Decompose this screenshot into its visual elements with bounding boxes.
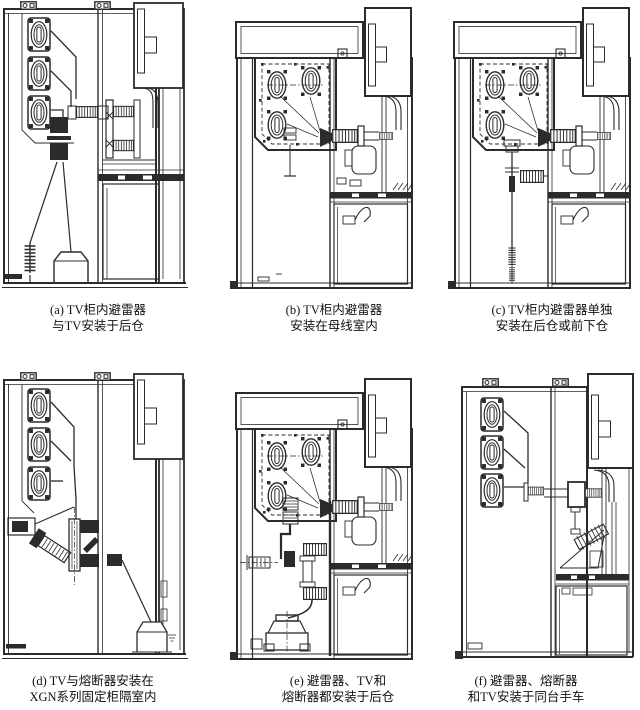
figure-a-caption: (a) TV柜内避雷器 与TV安装于后仓 (0, 302, 204, 334)
busbar-conductors (504, 411, 528, 487)
caption-line: XGN系列固定柜隔室内 (0, 689, 199, 705)
lower-compartment (556, 586, 627, 655)
post-insulators (481, 398, 503, 507)
roof-tab (21, 2, 36, 9)
compartment-divider (330, 192, 411, 202)
figure-page: { "page": { "background": "#ffffff", "li… (0, 0, 640, 710)
oval-insulator (301, 66, 320, 95)
figure-b-caption: (b) TV柜内避雷器 安装在母线室内 (234, 302, 434, 334)
figure-d: (d) TV与熔断器安装在 XGN系列固定柜隔室内 (0, 371, 212, 705)
cable-hook (355, 207, 370, 222)
caption-line: (a) TV柜内避雷器 (0, 302, 204, 318)
wall-bushing (114, 140, 134, 150)
voltage-transformer (54, 252, 88, 282)
caption-line: 安装在母线室内 (234, 318, 434, 334)
cable-hook (355, 578, 370, 593)
post-insulators (28, 389, 50, 500)
roof-tab (95, 2, 110, 9)
lower-bushing (521, 171, 544, 183)
hatch-strip (393, 183, 412, 190)
caption-line: (c) TV柜内避雷器单独 (452, 302, 640, 318)
figure-f-caption: (f) 避雷器、熔断器 和TV安装于同台手车 (427, 673, 625, 705)
cable-hook (573, 207, 588, 222)
figure-d-caption: (d) TV与熔断器安装在 XGN系列固定柜隔室内 (0, 673, 199, 705)
cabinet-d (2, 373, 188, 659)
figure-b: (b) TV柜内避雷器 安装在母线室内 (222, 0, 422, 334)
handcart-shaft (524, 482, 602, 507)
figure-a-drawing (0, 0, 212, 296)
cabinet-c (448, 8, 630, 289)
busbar-conductors (51, 31, 76, 118)
figure-e-drawing (222, 371, 422, 667)
drive-motor (352, 146, 376, 174)
fuse-holder (69, 507, 99, 585)
arrester-lead (30, 162, 57, 243)
oval-insulator (301, 437, 320, 466)
voltage-transformer (251, 611, 310, 654)
hatch-strip (611, 183, 630, 190)
roof-tab (95, 373, 110, 380)
cabinet-e (230, 379, 412, 660)
caption-line: 和TV安装于同台手车 (427, 689, 625, 705)
caption-line: (d) TV与熔断器安装在 (0, 673, 199, 689)
drive-motor (570, 146, 594, 174)
compartment-divider (98, 174, 184, 181)
roof-tab (483, 379, 498, 386)
caption-line: 安装在后仓或前下仓 (452, 318, 640, 334)
busbar-conductors (51, 402, 76, 519)
oval-insulator (267, 481, 286, 510)
surge-arrester (508, 246, 515, 282)
ground-symbol (168, 635, 176, 641)
caption-line: (e) 避雷器、TV和 (238, 673, 438, 689)
compartment-divider (548, 192, 629, 202)
oval-insulator (485, 110, 504, 139)
lower-compartment (103, 184, 159, 279)
figure-e: (e) 避雷器、TV和 熔断器都安装于后仓 (222, 371, 422, 705)
caption-line: 与TV安装于后仓 (0, 318, 204, 334)
wall-bushing (114, 106, 134, 116)
compartment-divider (556, 574, 629, 584)
mechanism-box (134, 374, 183, 459)
caption-line: 熔断器都安装于后仓 (238, 689, 438, 705)
oval-insulator (519, 66, 538, 95)
wall-bushing-right (107, 554, 122, 566)
breaker-poles (47, 117, 71, 160)
mechanism-box (365, 379, 411, 467)
voltage-transformer (132, 622, 176, 652)
cabinet-f (455, 374, 633, 659)
post-insulators (28, 18, 50, 129)
caption-line: (f) 避雷器、熔断器 (427, 673, 625, 689)
figure-f-drawing (440, 371, 638, 667)
cabinet-a (2, 2, 188, 288)
figure-d-drawing (0, 371, 212, 667)
tv-lead (122, 560, 151, 622)
drive-shaft (68, 100, 140, 158)
hatch-strip (393, 554, 412, 561)
compartment-divider (330, 563, 411, 573)
figure-c-caption: (c) TV柜内避雷器单独 安装在后仓或前下仓 (452, 302, 640, 334)
tv-lead (63, 162, 71, 252)
figure-a: (a) TV柜内避雷器 与TV安装于后仓 (0, 0, 212, 334)
mechanism-box (134, 3, 183, 88)
surge-arrester (25, 243, 36, 273)
figure-f: (f) 避雷器、熔断器 和TV安装于同台手车 (440, 371, 638, 705)
figure-b-drawing (222, 0, 422, 296)
busbar-compartment (255, 58, 336, 176)
caption-line: (b) TV柜内避雷器 (234, 302, 434, 318)
mechanism-box (365, 8, 411, 96)
figure-e-caption: (e) 避雷器、TV和 熔断器都安装于后仓 (238, 673, 438, 705)
roof-tab (21, 373, 36, 380)
drive-motor (352, 517, 376, 545)
fuse-tube (29, 528, 72, 565)
figure-c: (c) TV柜内避雷器单独 安装在后仓或前下仓 (440, 0, 640, 334)
figure-c-drawing (440, 0, 640, 296)
cabinet-b (230, 8, 412, 289)
link-rod (571, 507, 580, 534)
roof-tab (553, 379, 568, 386)
mechanism-box (583, 8, 629, 96)
